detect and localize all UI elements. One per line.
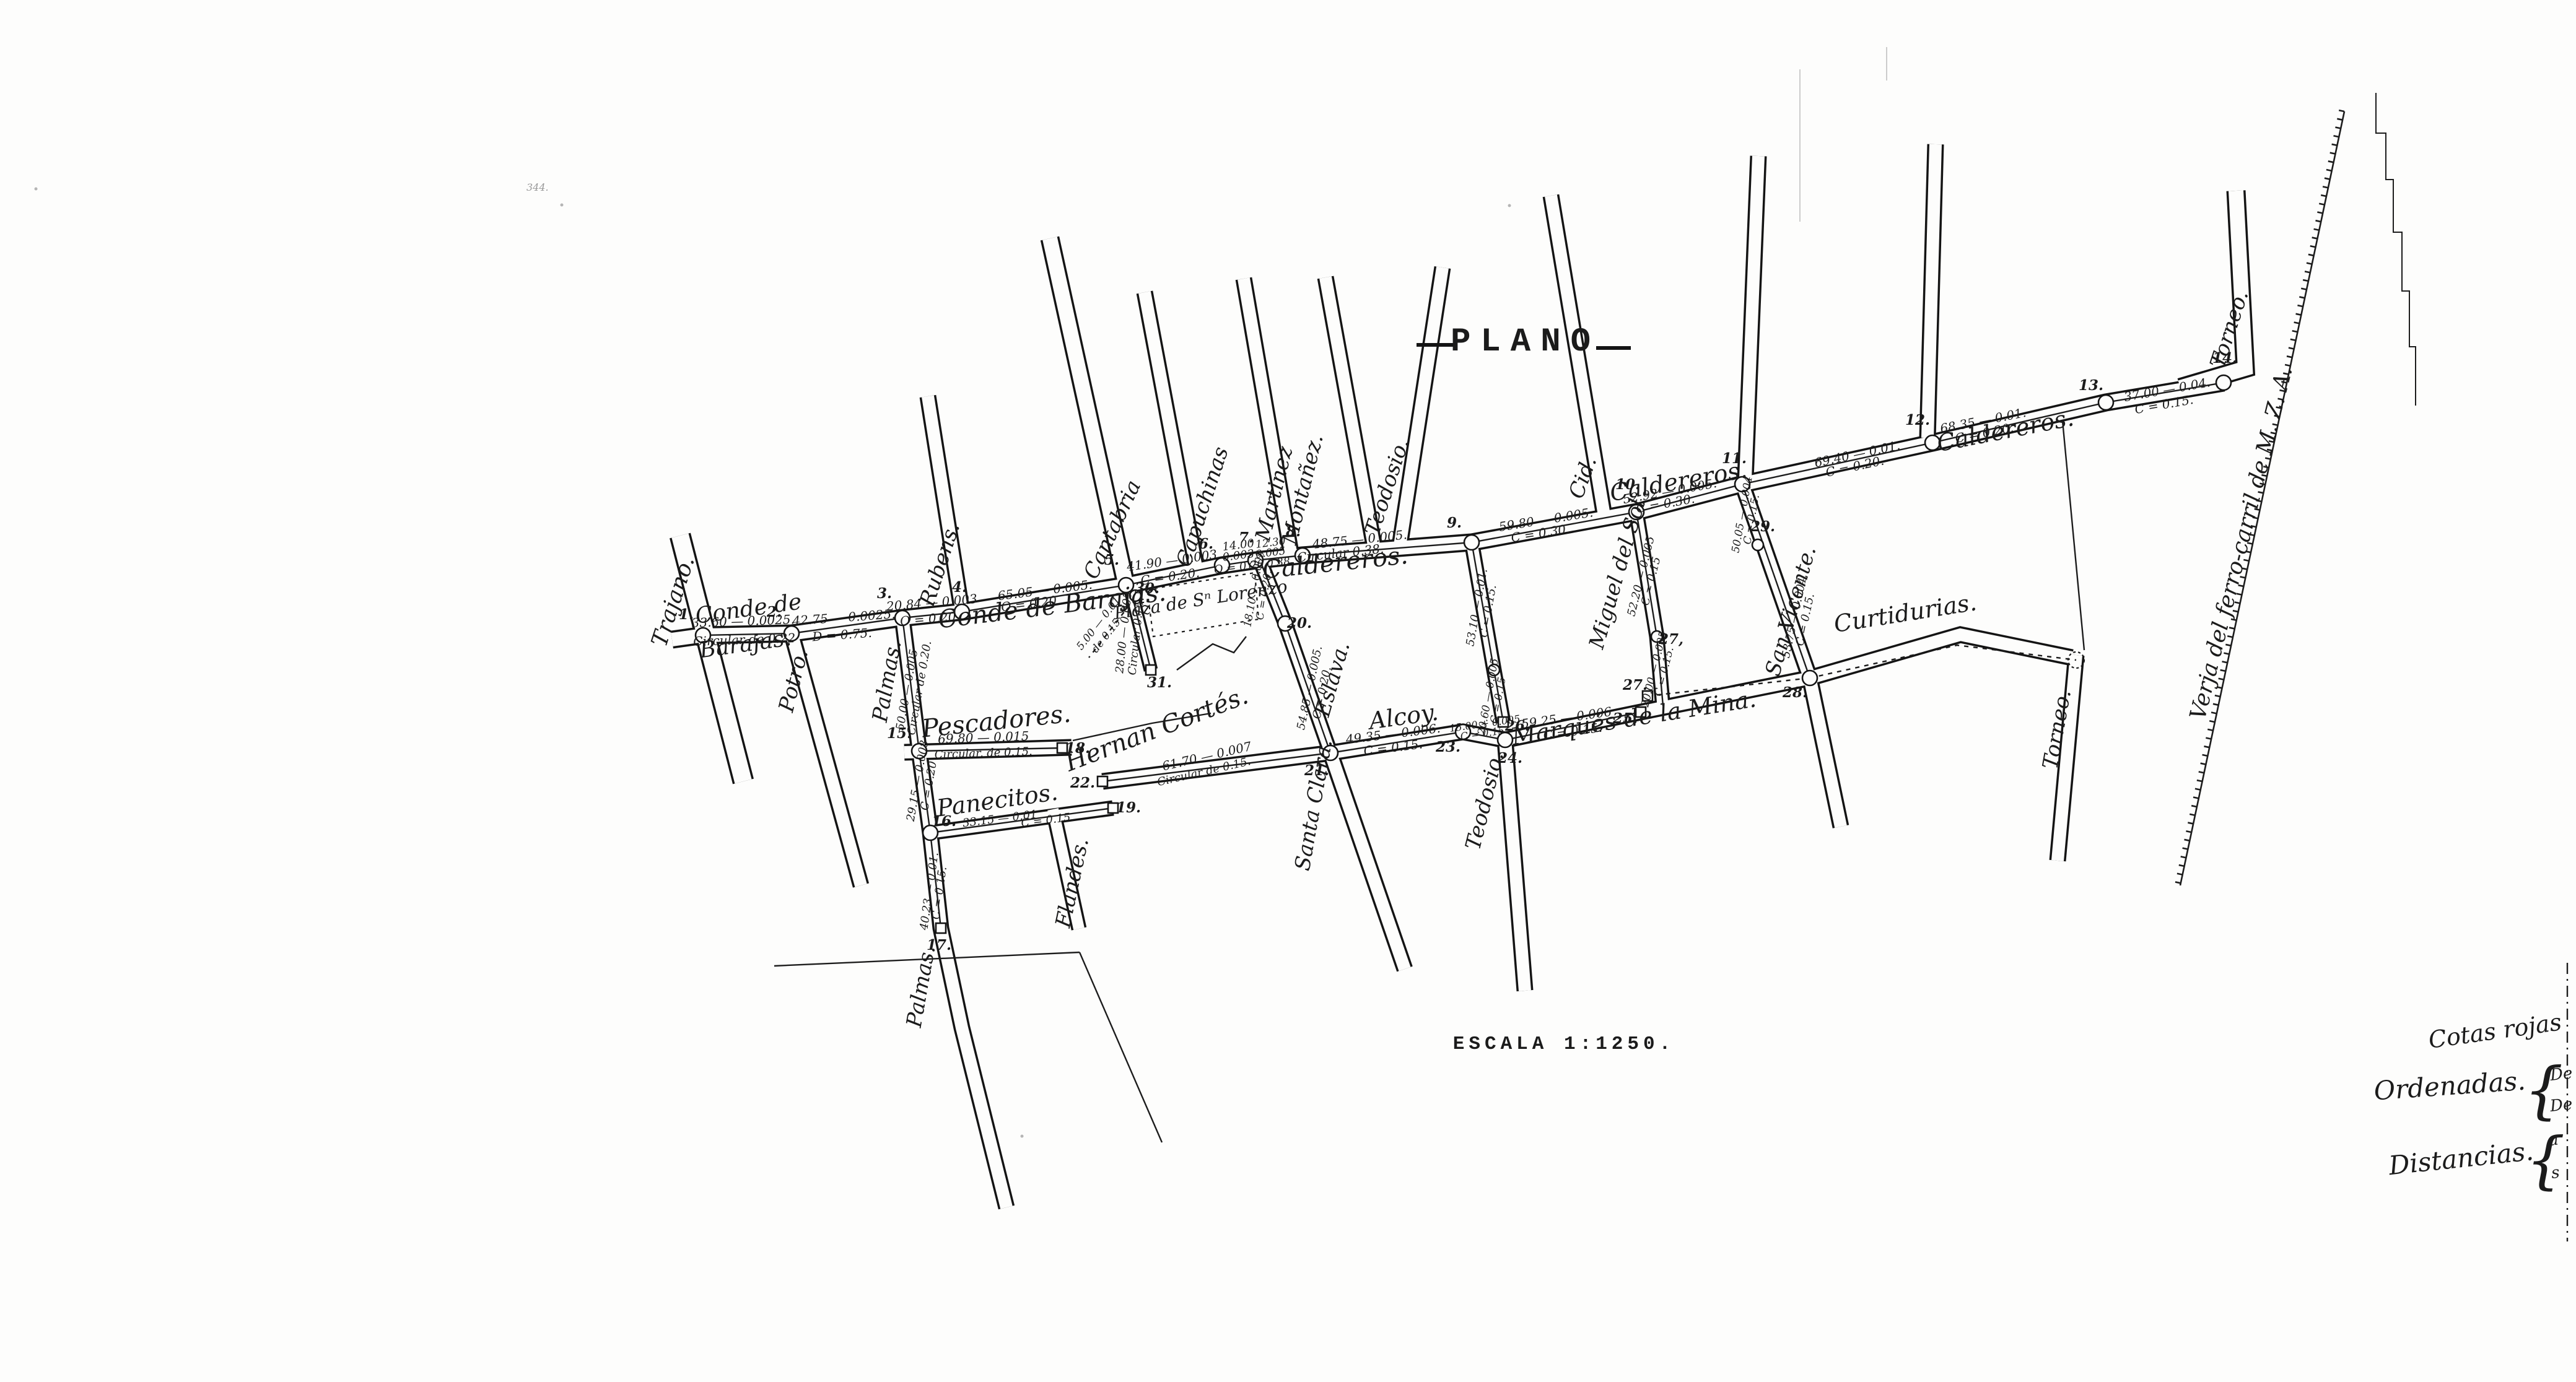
street-core-street-at-node12 xyxy=(1928,144,1936,438)
railway-tick xyxy=(2203,755,2208,756)
railway-tick xyxy=(2209,721,2215,722)
node-number: 23. xyxy=(1435,739,1460,755)
legend-fragment: De xyxy=(2549,1064,2574,1085)
railway-tick xyxy=(2323,186,2328,188)
railway-tick xyxy=(2188,823,2193,824)
railway-tick xyxy=(2312,238,2318,239)
node-number: 20. xyxy=(1286,615,1312,632)
railway-tick xyxy=(2307,263,2312,264)
railway-tick xyxy=(2191,806,2197,807)
page-title: PLANO xyxy=(1451,323,1600,361)
node-number: 28. xyxy=(1782,684,1807,701)
railway-tick xyxy=(2207,729,2213,731)
scan-speckle xyxy=(1021,1135,1024,1138)
railway-tick xyxy=(2328,161,2334,162)
railway-tick xyxy=(2190,814,2195,815)
manhole-node xyxy=(1802,671,1817,685)
manhole-node xyxy=(2216,375,2231,390)
node-number: 22. xyxy=(1070,775,1095,791)
node-number: 12. xyxy=(1905,412,1930,428)
railway-tick xyxy=(2326,170,2332,171)
node-number: 19. xyxy=(1116,799,1141,816)
legend-fragment: De xyxy=(2549,1095,2574,1116)
railway-tick xyxy=(2337,119,2342,120)
railway-tick xyxy=(2199,771,2204,773)
railway-tick xyxy=(2289,348,2294,349)
railway-tick xyxy=(2175,882,2181,883)
railway-tick xyxy=(2301,289,2307,290)
railway-tick xyxy=(2335,128,2341,129)
railway-tick xyxy=(2184,840,2190,841)
scale-label: ESCALA 1:1250. xyxy=(1453,1033,1675,1055)
railway-tick xyxy=(2177,874,2183,875)
legend-fragment: a xyxy=(2548,1131,2560,1150)
railway-tick xyxy=(2183,848,2188,850)
node-number: 31. xyxy=(1147,674,1172,691)
paper-background xyxy=(0,0,2576,1382)
railway-tick xyxy=(2330,153,2336,154)
manhole-node xyxy=(1464,535,1479,550)
railway-tick xyxy=(2303,280,2308,281)
measurement-annotation: 69.80 — 0.015 xyxy=(938,728,1029,746)
stray-mark: 344. xyxy=(526,181,549,193)
scan-speckle xyxy=(1508,204,1511,207)
scan-speckle xyxy=(35,188,38,191)
node-number: 9. xyxy=(1447,515,1462,531)
railway-tick xyxy=(2315,220,2321,222)
railway-tick xyxy=(2319,204,2325,205)
railway-tick xyxy=(2197,780,2203,781)
railway-tick xyxy=(2305,271,2310,272)
scanned-plan-page: 1.2.3.4.5.6.7.8.9.10.11.12.13.14.15.16.1… xyxy=(0,0,2576,1382)
street-plan-drawing: 1.2.3.4.5.6.7.8.9.10.11.12.13.14.15.16.1… xyxy=(0,0,2576,1382)
end-box-node xyxy=(936,923,946,933)
railway-tick xyxy=(2195,789,2201,790)
railway-tick xyxy=(2296,314,2302,315)
railway-tick xyxy=(2325,178,2330,180)
end-box-node xyxy=(1098,776,1107,786)
manhole-node xyxy=(2098,395,2113,410)
railway-tick xyxy=(2181,856,2186,858)
railway-tick xyxy=(2204,746,2209,747)
railway-tick xyxy=(2314,229,2320,230)
railway-tick xyxy=(2308,254,2314,256)
railway-tick xyxy=(2201,763,2206,765)
railway-tick xyxy=(2299,297,2305,298)
railway-tick xyxy=(2285,365,2290,366)
legend-distancias-brace: { xyxy=(2526,1124,2565,1196)
scan-speckle xyxy=(561,204,564,207)
railway-tick xyxy=(2310,246,2316,247)
railway-tick xyxy=(2292,331,2298,332)
railway-tick xyxy=(2339,110,2344,111)
railway-tick xyxy=(2321,195,2326,196)
railway-tick xyxy=(2333,136,2339,137)
railway-tick xyxy=(2179,865,2185,866)
railway-tick xyxy=(2332,144,2338,146)
end-box-node xyxy=(1146,665,1156,675)
railway-tick xyxy=(2193,797,2199,798)
railway-tick xyxy=(2290,339,2296,341)
railway-tick xyxy=(2297,305,2303,306)
railway-tick xyxy=(2317,212,2323,213)
legend-ordenadas-brace: { xyxy=(2524,1054,2564,1126)
railway-tick xyxy=(2294,323,2300,324)
railway-tick xyxy=(2206,738,2211,739)
railway-tick xyxy=(2186,831,2191,832)
railway-tick xyxy=(2287,356,2292,357)
node-number: 13. xyxy=(2079,377,2103,394)
